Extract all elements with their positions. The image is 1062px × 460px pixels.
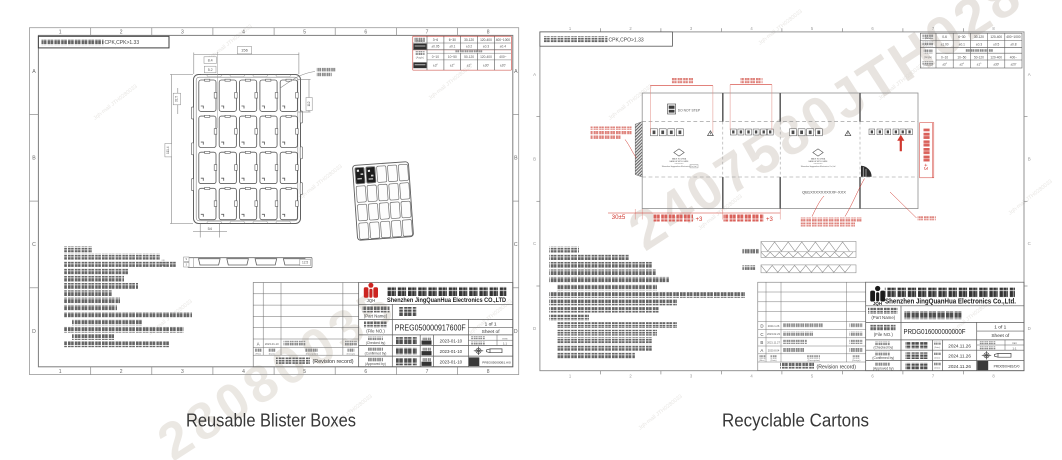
svg-text:156: 156 bbox=[241, 48, 248, 53]
svg-text:(File NO.): (File NO.) bbox=[874, 332, 894, 337]
svg-text:(Design): (Design) bbox=[347, 353, 356, 355]
svg-text:(Description): (Description) bbox=[306, 352, 319, 355]
svg-text:400~1000: 400~1000 bbox=[496, 38, 510, 42]
svg-text:±0.8: ±0.8 bbox=[1010, 42, 1016, 46]
svg-text:2024.11.26: 2024.11.26 bbox=[948, 354, 971, 359]
svg-text:5: 5 bbox=[303, 29, 306, 35]
svg-text:C: C bbox=[32, 242, 36, 248]
svg-text:50-120: 50-120 bbox=[974, 55, 984, 59]
svg-text:Shenzhen Jingquanhua Electroni: Shenzhen Jingquanhua Electronics Co.,Ltd bbox=[801, 165, 835, 168]
svg-text:2023-01-10: 2023-01-10 bbox=[440, 360, 463, 365]
svg-text:±20': ±20' bbox=[500, 64, 506, 68]
svg-text:Shenzhen JingQuanHua Electroni: Shenzhen JingQuanHua Electronics CO.,LTD bbox=[387, 297, 506, 304]
svg-text:(Rev): (Rev) bbox=[256, 353, 262, 355]
svg-text:10~50: 10~50 bbox=[448, 55, 457, 59]
svg-text:120-400: 120-400 bbox=[990, 55, 1002, 59]
svg-text:(Size): (Size) bbox=[416, 39, 423, 43]
svg-text:±0.3: ±0.3 bbox=[483, 45, 489, 49]
svg-text:(Date): (Date) bbox=[934, 356, 940, 359]
svg-text:1: 1 bbox=[59, 29, 62, 35]
svg-text:±3°: ±3° bbox=[433, 64, 439, 68]
svg-text:112: 112 bbox=[307, 101, 311, 106]
svg-text:mm: mm bbox=[502, 336, 507, 340]
svg-text:(Size): (Size) bbox=[925, 37, 932, 40]
svg-text:+3: +3 bbox=[696, 217, 704, 223]
svg-text:10~50: 10~50 bbox=[957, 55, 966, 59]
svg-text:30-120: 30-120 bbox=[464, 38, 474, 42]
svg-text:(Description): (Description) bbox=[808, 359, 821, 362]
svg-text:8.4: 8.4 bbox=[208, 58, 213, 62]
svg-text:B: B bbox=[514, 156, 518, 162]
svg-text:CPK,CPK>1.33: CPK,CPK>1.33 bbox=[105, 40, 140, 46]
svg-text:50-120: 50-120 bbox=[464, 55, 474, 59]
svg-text:54: 54 bbox=[208, 227, 212, 231]
svg-text:±20': ±20' bbox=[1010, 63, 1016, 67]
svg-text:+3: +3 bbox=[766, 217, 774, 223]
svg-text:(Confirmed by): (Confirmed by) bbox=[872, 356, 894, 360]
svg-text:±1.00: ±1.00 bbox=[941, 42, 949, 46]
svg-text:2: 2 bbox=[120, 369, 123, 375]
svg-text:7: 7 bbox=[426, 29, 429, 35]
svg-text:400~: 400~ bbox=[1010, 55, 1017, 59]
svg-text:32.5: 32.5 bbox=[175, 96, 179, 102]
svg-text:3: 3 bbox=[181, 29, 184, 35]
svg-text:MADE IN CHINA: MADE IN CHINA bbox=[672, 158, 687, 161]
svg-text:1 of 1: 1 of 1 bbox=[994, 324, 1006, 330]
svg-text:±0.4: ±0.4 bbox=[500, 45, 506, 49]
svg-text:6: 6 bbox=[364, 29, 367, 35]
svg-text:1:1: 1:1 bbox=[503, 342, 508, 346]
svg-text:JQH: JQH bbox=[367, 298, 376, 303]
svg-text:±0.2: ±0.2 bbox=[466, 45, 472, 49]
svg-text:(Revision record): (Revision record) bbox=[817, 365, 857, 371]
svg-text:3~6: 3~6 bbox=[433, 38, 439, 42]
svg-text:A: A bbox=[257, 341, 260, 346]
svg-text:Recyclable Cartons: Recyclable Cartons bbox=[722, 410, 869, 430]
svg-text:120-400: 120-400 bbox=[480, 38, 492, 42]
svg-text:CPK,CPO>1.33: CPK,CPO>1.33 bbox=[609, 37, 644, 43]
svg-text:±30': ±30' bbox=[483, 64, 489, 68]
svg-text:C: C bbox=[514, 242, 518, 248]
svg-text:±0.1: ±0.1 bbox=[959, 42, 965, 46]
svg-text:PREG050000B1.A/0: PREG050000B1.A/0 bbox=[482, 360, 511, 364]
svg-text:(Tolerance): (Tolerance) bbox=[923, 65, 933, 67]
svg-text:B: B bbox=[760, 340, 763, 345]
svg-text:Sheet of: Sheet of bbox=[482, 329, 501, 335]
svg-text:D: D bbox=[32, 329, 36, 335]
svg-text:400~1000: 400~1000 bbox=[1006, 35, 1020, 39]
svg-text:6~30: 6~30 bbox=[958, 35, 965, 39]
svg-text:7: 7 bbox=[426, 369, 429, 375]
svg-text:8: 8 bbox=[487, 369, 490, 375]
svg-text:(Date): (Date) bbox=[770, 359, 776, 362]
svg-text:A: A bbox=[32, 69, 36, 75]
svg-text:B: B bbox=[533, 157, 536, 162]
svg-text:(Date): (Date) bbox=[269, 352, 275, 355]
svg-text:0-6: 0-6 bbox=[942, 35, 947, 39]
svg-text:D: D bbox=[760, 324, 763, 329]
svg-text:0~10: 0~10 bbox=[941, 55, 948, 59]
svg-text:PRD0500481/D/0: PRD0500481/D/0 bbox=[994, 364, 1020, 368]
svg-text:6~30: 6~30 bbox=[449, 38, 456, 42]
svg-text:MADE IN CHINA: MADE IN CHINA bbox=[811, 158, 826, 161]
svg-text:2023-01-10: 2023-01-10 bbox=[265, 342, 279, 346]
svg-text:2: 2 bbox=[120, 29, 123, 35]
svg-text:(File NO.): (File NO.) bbox=[366, 328, 385, 333]
svg-text:(Angle): (Angle) bbox=[416, 56, 424, 59]
svg-text:C: C bbox=[760, 332, 763, 337]
svg-text:2024.1.26: 2024.1.26 bbox=[768, 324, 780, 328]
svg-text:±0.3: ±0.3 bbox=[976, 42, 982, 46]
svg-text:±3°: ±3° bbox=[942, 63, 948, 67]
svg-text:4: 4 bbox=[242, 29, 245, 35]
svg-text:4: 4 bbox=[242, 369, 245, 375]
svg-text:12.5: 12.5 bbox=[302, 261, 308, 265]
svg-text:JQH: JQH bbox=[873, 301, 882, 306]
svg-text:±0.5: ±0.5 bbox=[993, 42, 999, 46]
svg-text:mm: mm bbox=[1012, 341, 1017, 345]
svg-text:120-400: 120-400 bbox=[990, 35, 1002, 39]
svg-text:(Part Name): (Part Name) bbox=[364, 314, 388, 319]
svg-text:+3: +3 bbox=[922, 164, 928, 170]
svg-text:DO NOT STEP: DO NOT STEP bbox=[678, 108, 701, 112]
svg-text:±0.05: ±0.05 bbox=[431, 45, 439, 49]
svg-text:PREG050000917600F: PREG050000917600F bbox=[395, 324, 466, 333]
svg-text:B: B bbox=[32, 156, 36, 162]
svg-text:0~10: 0~10 bbox=[432, 55, 439, 59]
svg-text:±30': ±30' bbox=[993, 63, 999, 67]
svg-text:2020.8.04: 2020.8.04 bbox=[768, 349, 780, 353]
svg-text:2023.02.23: 2023.02.23 bbox=[767, 332, 781, 336]
svg-text:D: D bbox=[1028, 326, 1031, 331]
svg-text:Shenzhen Jingquanhua Electroni: Shenzhen Jingquanhua Electronics Co.,Ltd bbox=[662, 165, 696, 168]
svg-text:C: C bbox=[1028, 241, 1031, 246]
svg-text:HANDLE WITH CARE: HANDLE WITH CARE bbox=[670, 160, 690, 163]
svg-text:2021.11.27: 2021.11.27 bbox=[767, 340, 780, 344]
svg-text:Sheet of: Sheet of bbox=[991, 333, 1010, 339]
svg-text:1: 1 bbox=[59, 369, 62, 375]
svg-text:±0.1: ±0.1 bbox=[449, 45, 455, 49]
svg-text:A: A bbox=[533, 72, 536, 77]
svg-text:2024.11.26: 2024.11.26 bbox=[948, 364, 971, 369]
svg-text:(Design): (Design) bbox=[852, 360, 861, 362]
svg-text:400~: 400~ bbox=[499, 55, 506, 59]
svg-text:3: 3 bbox=[181, 369, 184, 375]
svg-text:A: A bbox=[1028, 72, 1031, 77]
svg-text:A: A bbox=[760, 348, 763, 353]
svg-text:HANDLE WITH CARE: HANDLE WITH CARE bbox=[809, 160, 829, 163]
svg-text:(Confirmed by): (Confirmed by) bbox=[365, 352, 387, 356]
svg-text:1 of 1: 1 of 1 bbox=[485, 321, 497, 327]
svg-text:5: 5 bbox=[303, 369, 306, 375]
svg-text:±2°: ±2° bbox=[450, 64, 456, 68]
svg-text:(Revision record): (Revision record) bbox=[313, 359, 354, 365]
svg-text:(Date): (Date) bbox=[934, 367, 940, 370]
svg-text:111.4: 111.4 bbox=[166, 146, 170, 154]
svg-text:(Angle): (Angle) bbox=[924, 56, 932, 59]
svg-text:2023-01-10: 2023-01-10 bbox=[440, 339, 463, 344]
svg-text:PRDG016000000000F: PRDG016000000000F bbox=[904, 329, 966, 336]
svg-text:±1°: ±1° bbox=[977, 63, 983, 67]
svg-text:(Rev): (Rev) bbox=[759, 360, 765, 362]
svg-text:D: D bbox=[533, 326, 536, 331]
svg-text:(Tolerance): (Tolerance) bbox=[923, 45, 933, 47]
svg-text:1:1: 1:1 bbox=[1012, 346, 1017, 350]
svg-text:(Part Name): (Part Name) bbox=[871, 315, 895, 320]
svg-text:(Approved by): (Approved by) bbox=[873, 366, 894, 370]
svg-text:(Checked by): (Checked by) bbox=[366, 341, 386, 345]
svg-text:±1°: ±1° bbox=[467, 64, 473, 68]
svg-text:120-400: 120-400 bbox=[480, 55, 492, 59]
svg-text:±2°: ±2° bbox=[959, 63, 965, 67]
svg-text:5.2: 5.2 bbox=[208, 68, 213, 72]
svg-text:2024.11.26: 2024.11.26 bbox=[948, 343, 971, 348]
svg-text:A: A bbox=[514, 69, 518, 75]
svg-text:30±5: 30±5 bbox=[612, 214, 626, 221]
svg-text:D: D bbox=[514, 329, 518, 335]
svg-text:Shenzhen JingQuanHua Electroni: Shenzhen JingQuanHua Electronics Co.,Ltd… bbox=[885, 298, 1016, 305]
svg-text:(Approved by): (Approved by) bbox=[365, 362, 386, 366]
svg-text:8: 8 bbox=[487, 29, 490, 35]
svg-text:C: C bbox=[533, 241, 536, 246]
svg-text:2023-01-10: 2023-01-10 bbox=[440, 349, 463, 354]
svg-text:B: B bbox=[1028, 157, 1031, 162]
svg-text:Reusable Blister Boxes: Reusable Blister Boxes bbox=[186, 410, 356, 430]
svg-text:30-120: 30-120 bbox=[974, 35, 984, 39]
svg-text:(Date): (Date) bbox=[934, 346, 940, 349]
svg-text:6: 6 bbox=[364, 369, 367, 375]
svg-text:(Checked by): (Checked by) bbox=[873, 346, 893, 350]
svg-text:QB1XXXXXXXXXF-XXX: QB1XXXXXXXXXF-XXX bbox=[802, 189, 846, 194]
